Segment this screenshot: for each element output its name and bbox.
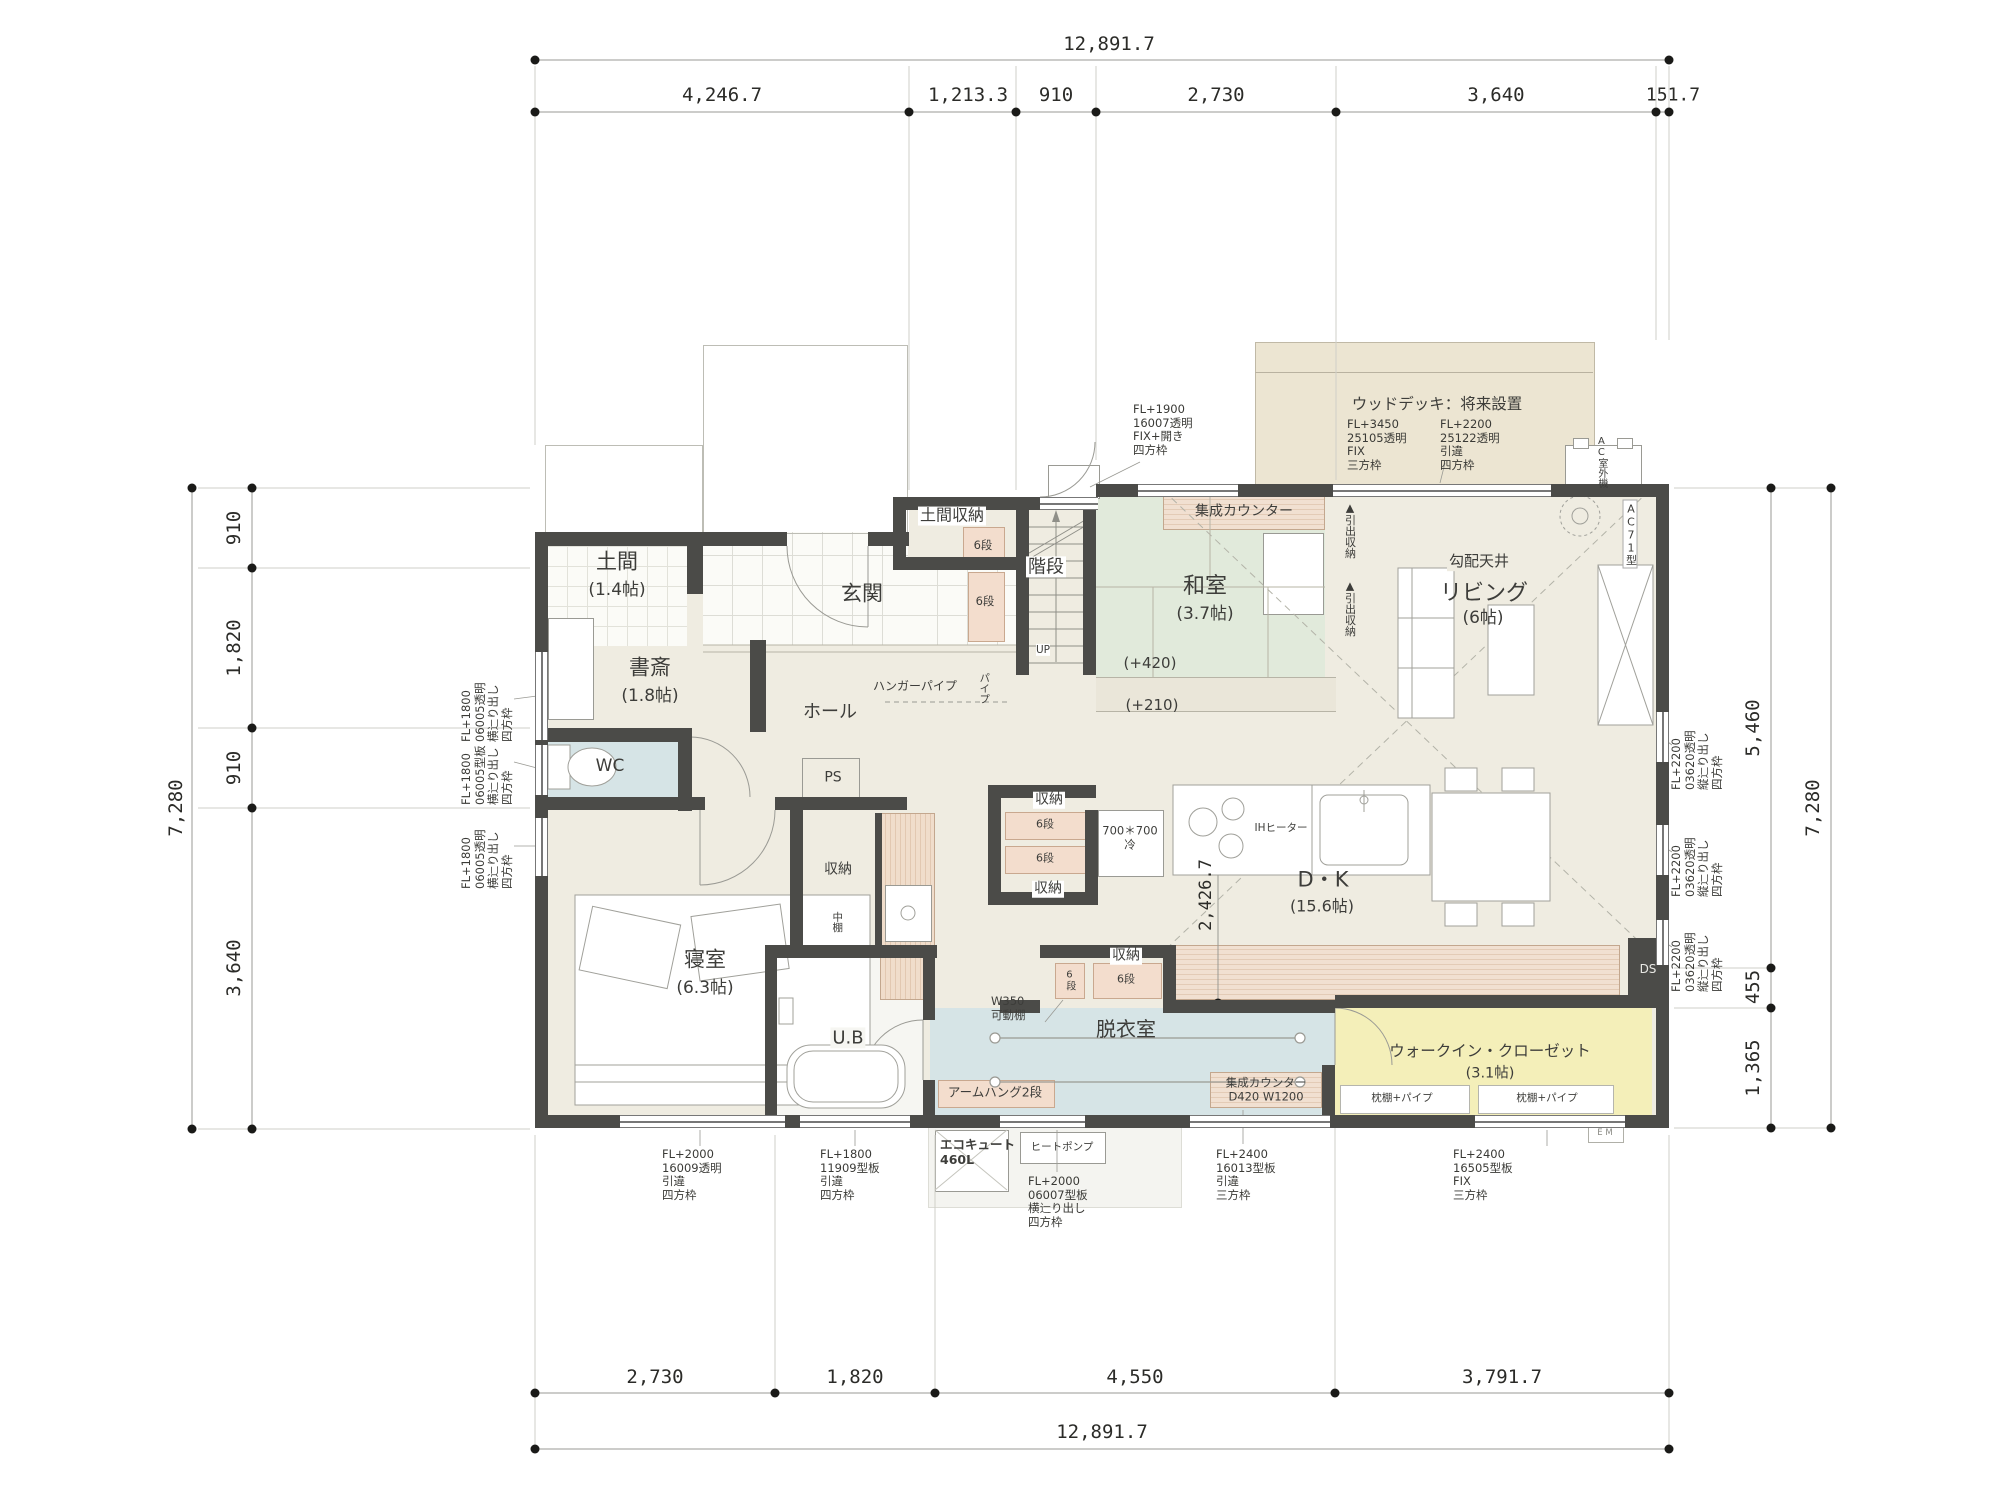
wall (988, 785, 1001, 905)
label-ac71: AC71型 (1623, 500, 1638, 569)
room-size-doma: (1.4帖) (588, 580, 645, 600)
wall-right-outer (1656, 484, 1669, 1128)
window-annotation-deck-left: FL+3450 25105透明 FIX 三方枠 (1347, 418, 1407, 472)
dim-right-1: 5,460 (1742, 699, 1764, 756)
room-label-wc: WC (596, 756, 625, 776)
window-bedroom-left (535, 818, 548, 876)
wall (775, 797, 907, 810)
dim-left-2: 1,820 (223, 619, 245, 676)
wall (750, 640, 766, 732)
label-wic-shelf-right: 枕棚+パイプ (1516, 1092, 1577, 1104)
label-wood-deck: ウッドデッキ：将来設置 (1352, 395, 1523, 413)
window-annotation-left-3: FL+1800 06005透明 横辷り出し 四方枠 (460, 803, 514, 889)
window-annotation-bottom-2: FL+1800 11909型板 引違 四方枠 (820, 1148, 880, 1202)
window-right-1 (1656, 712, 1669, 762)
label-drawer-storage-2: ▲引出収納 (1343, 580, 1356, 637)
window-bedroom-bottom (620, 1115, 785, 1128)
window-annotation-right-3: FL+2200 03620透明 縦辷り出し 四方枠 (1670, 906, 1724, 992)
wall (535, 797, 705, 810)
dim-bottom-total: 12,891.7 (1056, 1421, 1148, 1443)
window-annotation-bottom-3: FL+2000 06007型板 横辷り出し 四方枠 (1028, 1175, 1088, 1229)
window-wic (1475, 1115, 1625, 1128)
label-hanger-pipe: ハンガーパイプ (873, 679, 957, 693)
room-size-wic: (3.1帖) (1466, 1065, 1515, 1082)
dim-left-1: 910 (223, 511, 245, 545)
label-sloped-ceiling: 勾配天井 (1447, 553, 1511, 571)
room-label-domashuno: 土間収納 (918, 507, 986, 526)
wall (923, 958, 935, 1020)
label-arm-hang: アームハング2段 (948, 1086, 1042, 1101)
wall (1322, 1065, 1335, 1115)
wall (923, 1080, 935, 1115)
label-stairs-up: UP (1036, 644, 1050, 656)
window-stairs-top (1040, 497, 1098, 510)
window-wc (535, 745, 548, 795)
wall (875, 813, 882, 958)
label-nakadana-closet: 収納 (824, 862, 852, 879)
window-ub (800, 1115, 910, 1128)
window-annotation-bottom-1: FL+2000 16009透明 引違 四方枠 (662, 1148, 722, 1202)
window-washitsu-top (1138, 484, 1238, 497)
dim-top-3: 910 (1039, 84, 1073, 106)
label-level-210: (+210) (1126, 697, 1179, 715)
wall (687, 532, 703, 594)
label-level-420: (+420) (1124, 655, 1177, 673)
label-storage-c-dan: 6段 (1117, 974, 1135, 987)
wall (1096, 484, 1138, 497)
window-shosai (535, 652, 548, 740)
wall (1085, 810, 1098, 905)
dim-top-total: 12,891.7 (1063, 33, 1155, 55)
label-storage-c: 収納 (1110, 948, 1142, 965)
wall (765, 945, 937, 958)
label-nakadana: 中棚 (831, 912, 843, 933)
label-em: E M (1597, 1128, 1612, 1138)
dim-right-total: 7,280 (1802, 779, 1824, 836)
wall (535, 728, 690, 742)
window-datsui (1000, 1115, 1085, 1128)
room-size-dk: (15.6帖) (1290, 898, 1354, 917)
window-annotation-top: FL+1900 16007透明 FIX+開き 四方枠 (1133, 403, 1193, 457)
room-label-shosai: 書斎 (629, 656, 671, 681)
label-ecocute: エコキュート 460L (940, 1138, 1015, 1168)
dim-bottom-1: 2,730 (626, 1366, 683, 1388)
dim-bottom-3: 4,550 (1106, 1366, 1163, 1388)
window-annotation-deck-right: FL+2200 25122透明 引違 四方枠 (1440, 418, 1500, 472)
wall (1238, 484, 1336, 497)
dim-right-3: 1,365 (1742, 1039, 1764, 1096)
room-label-genkan: 玄関 (841, 582, 883, 607)
label-pipe: パイプ (978, 672, 990, 704)
label-storage-b: 収納 (1032, 881, 1064, 898)
label-storage-b-dan: 6段 (1036, 853, 1054, 866)
dim-left-total: 7,280 (165, 779, 187, 836)
dim-top-4: 2,730 (1187, 84, 1244, 106)
dim-top-2: 1,213.3 (928, 84, 1008, 106)
floor-plan: 土間 (1.4帖) 書斎 (1.8帖) WC 玄関 ホール PS ハンガーパイプ… (0, 0, 1999, 1500)
room-label-ub: U.B (830, 1027, 865, 1048)
room-label-wic: ウォークイン・クローゼット (1389, 1042, 1591, 1060)
wall (1040, 945, 1163, 958)
label-storage-c-dan-v: 6段 (1063, 970, 1075, 991)
room-size-shosai: (1.8帖) (621, 686, 678, 706)
label-washitsu-counter: 集成カウンター (1195, 504, 1293, 521)
room-size-washitsu: (3.7帖) (1176, 604, 1233, 624)
wall (703, 532, 787, 546)
wall (1016, 497, 1029, 675)
dim-kitchen: 2,426.7 (1196, 859, 1216, 931)
window-right-3 (1656, 920, 1669, 965)
label-ac-outdoor: AC室外機 (1595, 436, 1607, 488)
wall (893, 557, 1016, 570)
label-domashuno-dan: 6段 (974, 539, 993, 553)
label-ds: DS (1640, 962, 1657, 976)
window-annotation-right-2: FL+2200 03620透明 縦辷り出し 四方枠 (1670, 811, 1724, 897)
window-right-2 (1656, 825, 1669, 875)
label-movable-shelf: W350 可動棚 (991, 995, 1026, 1022)
wall (1551, 484, 1669, 497)
window-deck (1333, 484, 1551, 497)
room-label-dk: D・K (1298, 868, 1349, 893)
label-genkan-closet-dan: 6段 (976, 595, 995, 609)
wall (1163, 1000, 1335, 1013)
window-annotation-right-1: FL+2200 03620透明 縦辷り出し 四方枠 (1670, 704, 1724, 790)
label-ih-heater: IHヒーター (1255, 822, 1308, 834)
room-label-doma: 土間 (596, 550, 638, 575)
label-drawer-storage-1: ▲引出収納 (1343, 502, 1356, 559)
label-storage-a: 収納 (1033, 792, 1065, 809)
room-size-living: (6帖) (1462, 608, 1503, 628)
label-fridge: 700＊700 冷 (1102, 824, 1157, 851)
dim-left-3: 910 (223, 751, 245, 785)
dim-bottom-4: 3,791.7 (1462, 1366, 1542, 1388)
room-size-bedroom: (6.3帖) (676, 978, 733, 998)
dim-left-4: 3,640 (223, 939, 245, 996)
room-label-hall: ホール (803, 701, 857, 722)
dim-right-2: 455 (1742, 970, 1764, 1004)
room-label-bedroom: 寝室 (684, 948, 726, 973)
dim-top-1: 4,246.7 (682, 84, 762, 106)
wall (1083, 497, 1096, 675)
wall (765, 958, 777, 1115)
room-label-datsui: 脱衣室 (1096, 1018, 1156, 1042)
dim-bottom-2: 1,820 (826, 1366, 883, 1388)
label-heatpump: ヒートポンプ (1031, 1141, 1094, 1153)
window-annotation-bottom-5: FL+2400 16505型板 FIX 三方枠 (1453, 1148, 1513, 1202)
room-label-washitsu: 和室 (1183, 574, 1227, 600)
label-storage-a-dan: 6段 (1036, 819, 1054, 832)
room-label-living: リビング (1440, 581, 1528, 607)
wall (535, 532, 703, 546)
window-counter (1190, 1115, 1330, 1128)
dim-top-6: 151.7 (1646, 84, 1700, 105)
label-datsui-counter: 集成カウンター D420 W1200 (1226, 1076, 1307, 1103)
room-label-ps: PS (824, 770, 841, 787)
window-annotation-bottom-4: FL+2400 16013型板 引違 三方枠 (1216, 1148, 1276, 1202)
wall (1335, 995, 1655, 1008)
wall (790, 810, 803, 958)
window-annotation-left-2: FL+1800 06005型板 横辷り出し 四方枠 (460, 719, 514, 805)
dim-top-5: 3,640 (1467, 84, 1524, 106)
label-wic-shelf-left: 枕棚+パイプ (1371, 1092, 1432, 1104)
room-label-kaidan: 階段 (1026, 556, 1066, 577)
